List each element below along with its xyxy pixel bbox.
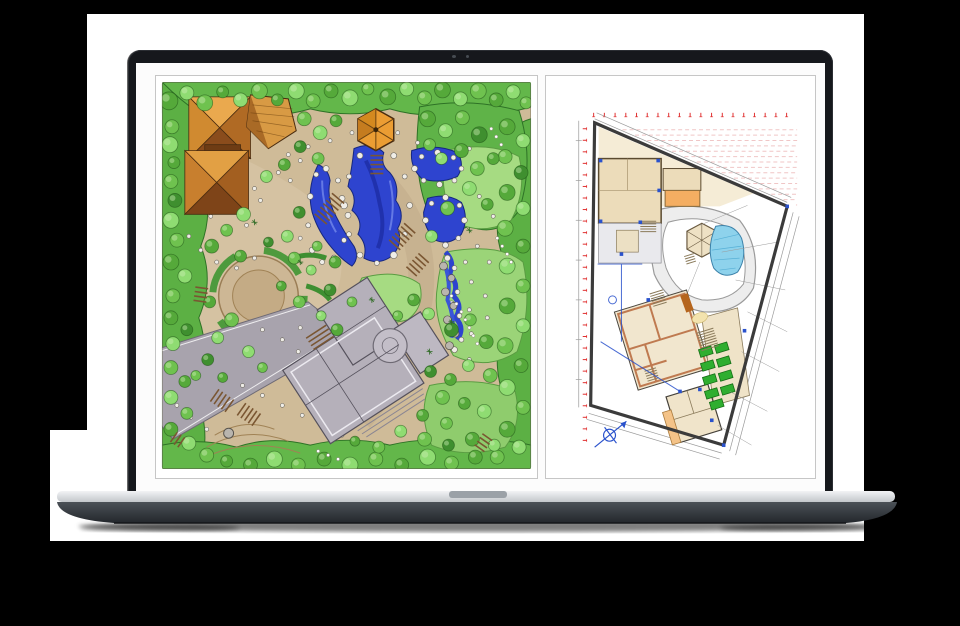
roof-building-lower <box>185 151 249 215</box>
cad-plan-image <box>545 75 816 479</box>
gazebo <box>358 109 394 151</box>
sketch-plan-image <box>155 75 538 479</box>
swimming-pool <box>710 225 744 275</box>
page-background <box>0 0 960 626</box>
laptop-screen-bezel <box>128 50 833 497</box>
webcam-icon <box>452 55 456 58</box>
laptop-display <box>136 63 825 491</box>
ambient-sensor-icon <box>466 55 469 58</box>
